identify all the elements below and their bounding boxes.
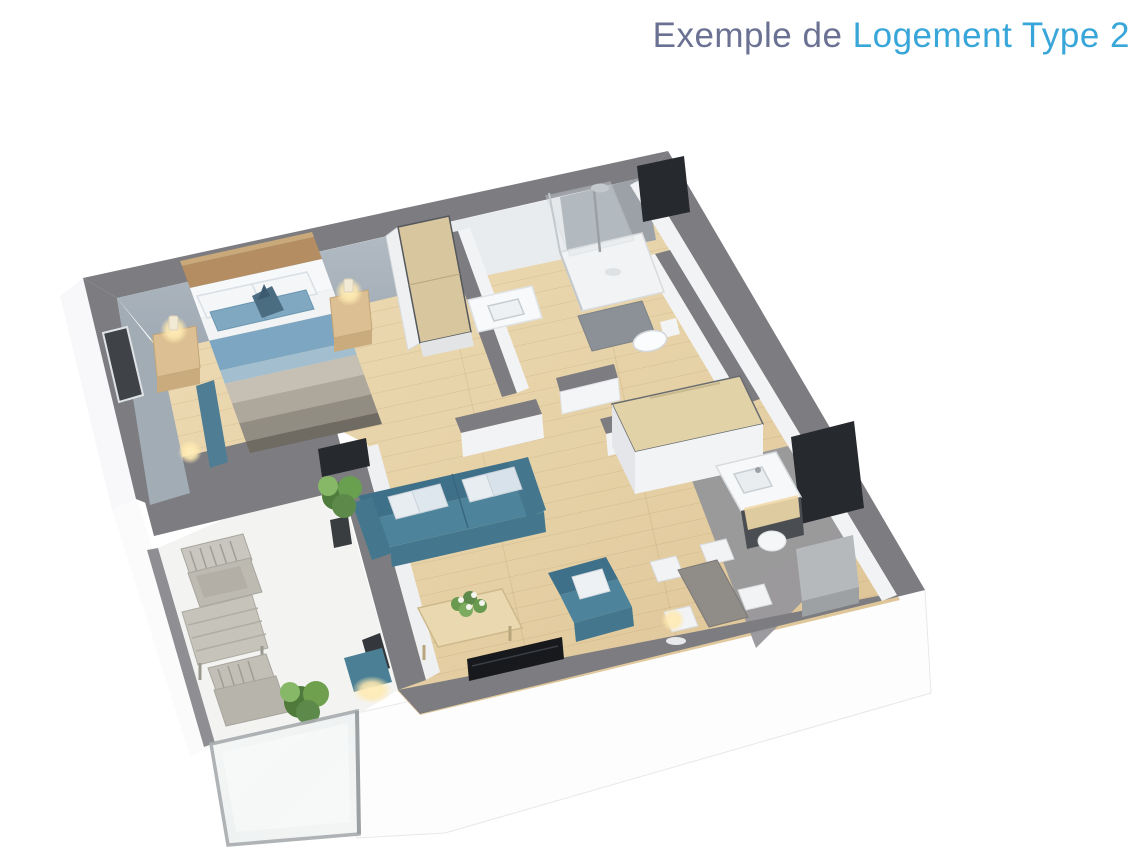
bathroom-corner-niche — [637, 156, 690, 222]
shower-head — [591, 184, 609, 193]
dining-floor-lamp-base — [666, 637, 686, 645]
living-floor-lamp — [352, 676, 392, 704]
shower-drain — [605, 268, 621, 276]
kitchen-cabinet — [796, 535, 859, 617]
table-lamp-right — [344, 279, 353, 292]
floor-plan-rendering — [0, 0, 1140, 855]
kitchen-wall-niche — [791, 421, 864, 524]
page: Exemple de Logement Type 2 — [0, 0, 1140, 855]
dining-floor-lamp-glow — [661, 608, 685, 632]
title-highlight: Logement Type 2 — [853, 16, 1130, 55]
balustrade-post — [357, 711, 359, 834]
faucet — [755, 467, 761, 473]
title-prefix: Exemple de — [653, 16, 853, 55]
bedroom-floor-lamp — [178, 440, 202, 464]
table-lamp-left — [169, 316, 178, 330]
waste-bin — [758, 531, 786, 551]
page-title: Exemple de Logement Type 2 — [653, 16, 1130, 56]
